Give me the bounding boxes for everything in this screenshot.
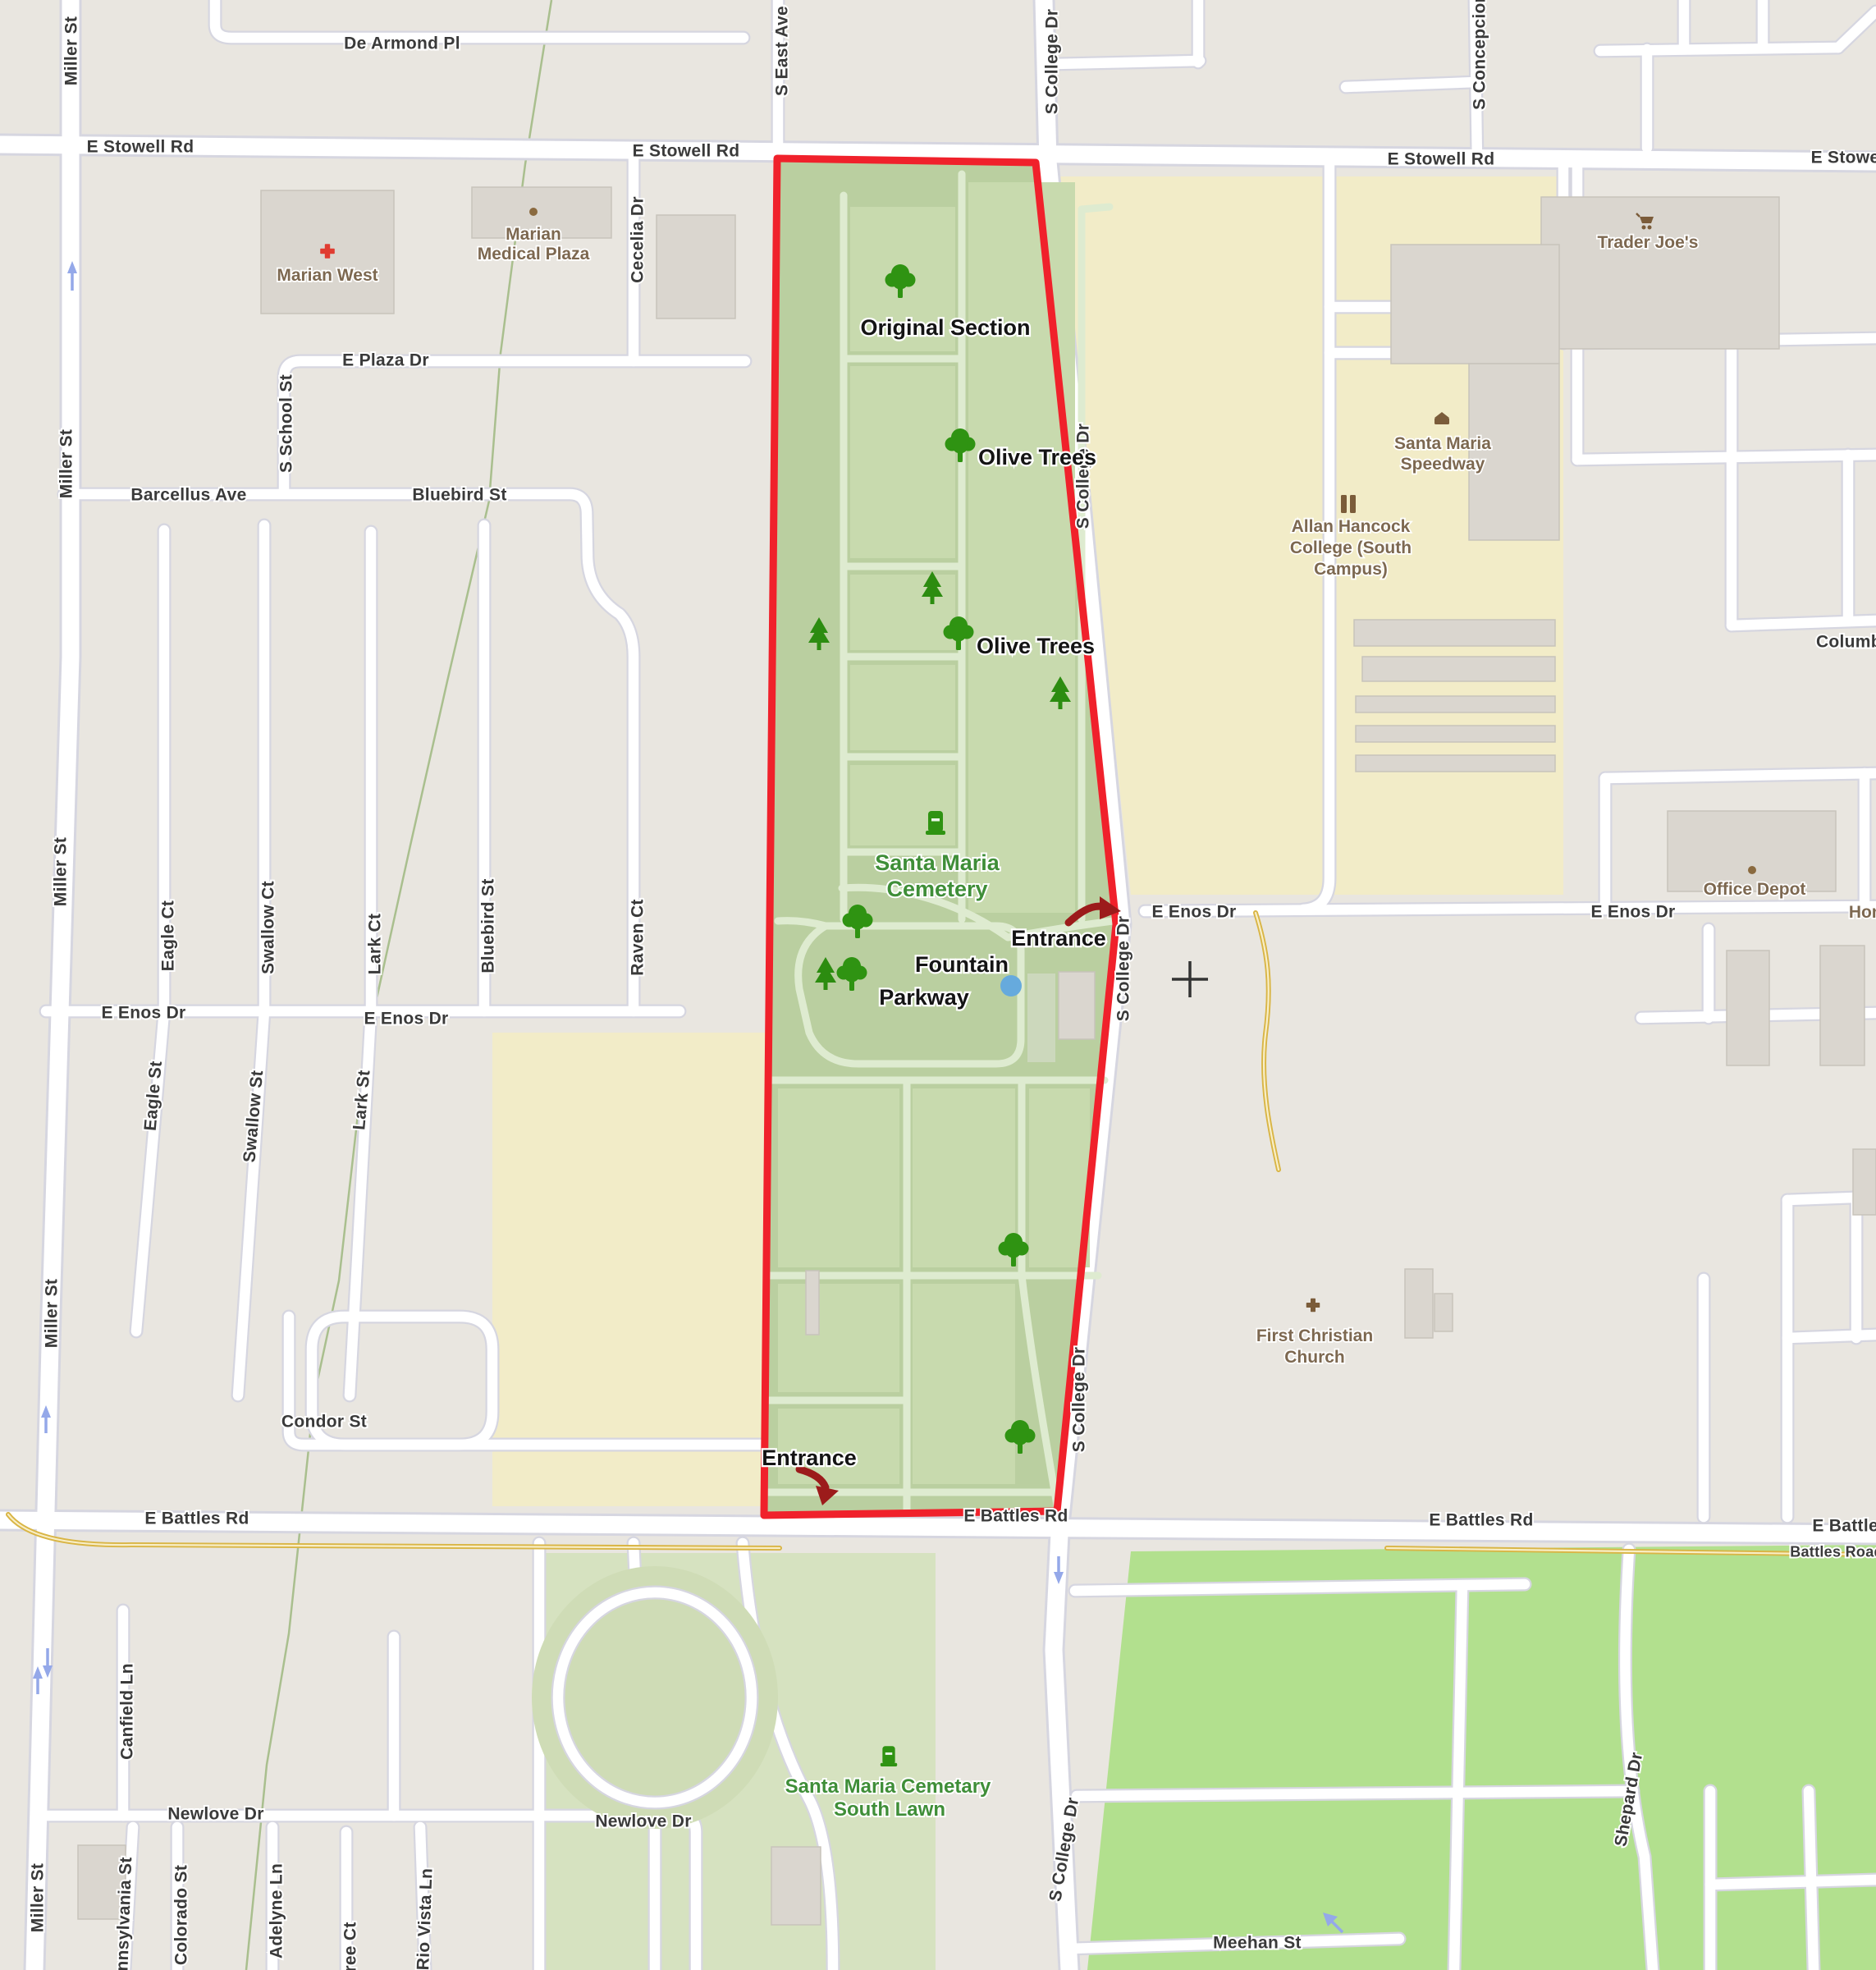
poi-label-hancock-3: Campus) <box>1314 560 1388 579</box>
cemetery-area <box>764 158 1116 1515</box>
cemetery-monument-icon <box>926 811 945 835</box>
street-label: S College Dr <box>1042 9 1061 114</box>
annotation-fountain: Fountain <box>915 952 1009 977</box>
annotation-entrance-north: Entrance <box>1011 926 1106 951</box>
street-label: S East Ave <box>772 6 791 96</box>
street-label: Miller St <box>28 1863 47 1932</box>
map-canvas[interactable]: Miller St Miller St Miller St Miller St … <box>0 0 1876 1970</box>
street-label: Cecelia Dr <box>628 196 647 283</box>
annotation-olive-trees-2: Olive Trees <box>977 634 1095 658</box>
street-label: E Stowell Rd <box>633 141 740 160</box>
cemetery-name-line1: Santa Maria <box>875 850 1000 875</box>
south-lawn-circle-area <box>532 1566 778 1829</box>
poi-label-speedway-1: Santa Maria <box>1394 434 1491 453</box>
street-label: Condor St <box>281 1412 367 1431</box>
street-label: E Battles Rd <box>963 1506 1068 1525</box>
street-label: Newlove Dr <box>167 1804 263 1823</box>
cemetery-name-line2: Cemetery <box>886 877 987 901</box>
street-label: Newlove Dr <box>595 1812 691 1830</box>
street-label: Raven Ct <box>628 899 647 975</box>
street-label: E Stowell Rd <box>87 137 194 156</box>
street-label: ree Ct <box>341 1922 359 1970</box>
annotation-parkway: Parkway <box>879 985 969 1010</box>
map-svg: Miller St Miller St Miller St Miller St … <box>0 0 1876 1970</box>
street-label: Colorado St <box>172 1865 190 1965</box>
south-lawn-name-line2: South Lawn <box>834 1798 945 1821</box>
street-label: E Enos Dr <box>1151 902 1236 921</box>
street-label: Meehan St <box>1213 1933 1302 1952</box>
street-label: E Enos Dr <box>101 1003 185 1022</box>
street-label: S College Dr <box>1069 1347 1088 1452</box>
street-label: Miller St <box>62 16 80 85</box>
south-lawn-name-line1: Santa Maria Cemetary <box>785 1775 991 1798</box>
street-label: Miller St <box>42 1279 61 1348</box>
poi-label-hancock-1: Allan Hancock <box>1292 517 1411 536</box>
poi-label-speedway-2: Speedway <box>1401 455 1485 474</box>
poi-label-church-1: First Christian <box>1256 1326 1373 1345</box>
poi-label-home-clipped: Home <box>1849 903 1876 922</box>
street-label: De Armond Pl <box>344 34 460 53</box>
street-label: Swallow Ct <box>259 881 277 974</box>
annotation-original-section: Original Section <box>860 315 1030 340</box>
street-label: Bluebird St <box>412 485 506 504</box>
street-label: Lark Ct <box>365 914 384 974</box>
park-area-east <box>1087 1545 1876 1970</box>
cemetery-parking <box>1027 974 1055 1062</box>
street-label: Pennsylvania St <box>112 1857 135 1970</box>
street-label: E Enos Dr <box>364 1009 448 1028</box>
poi-label-office-depot: Office Depot <box>1704 880 1806 899</box>
poi-label-marian-west: Marian West <box>277 266 377 285</box>
street-label: Eagle Ct <box>158 900 177 971</box>
south-lawn-monument-icon <box>881 1746 897 1766</box>
poi-dot-icon <box>529 208 538 216</box>
cemetery-small-building <box>806 1271 819 1335</box>
street-label: Bluebird St <box>478 878 497 973</box>
street-label: Barcellus Ave <box>130 485 246 504</box>
street-label: S College Dr <box>1114 916 1132 1021</box>
street-label: Battles Road <box>1790 1543 1876 1560</box>
street-label: E Battles Rd <box>1429 1510 1533 1529</box>
annotation-entrance-south: Entrance <box>762 1445 857 1470</box>
cemetery-office-building <box>1059 972 1095 1039</box>
poi-label-hancock-2: College (South <box>1290 538 1412 557</box>
annotation-olive-trees-1: Olive Trees <box>978 445 1096 470</box>
street-label: E Enos Dr <box>1590 902 1675 921</box>
street-label: Columbia <box>1816 632 1876 651</box>
poi-label-marian-medical-1: Marian <box>506 225 561 244</box>
street-label: E Plaza Dr <box>342 350 429 369</box>
fountain-icon <box>1000 975 1022 996</box>
poi-label-marian-medical-2: Medical Plaza <box>478 245 590 263</box>
school-grounds-area <box>492 1033 771 1506</box>
street-label: S College Dr <box>1073 424 1092 529</box>
poi-dot-icon <box>1748 866 1756 874</box>
poi-label-trader-joes: Trader Joe's <box>1598 233 1699 252</box>
street-label: E Stowell Rd <box>1811 148 1876 167</box>
street-label: Miller St <box>57 429 75 498</box>
street-label: E Stowell Rd <box>1388 149 1495 168</box>
street-label: E Battles Rd <box>144 1509 249 1528</box>
street-label: S Concepcion <box>1470 0 1489 110</box>
street-label: Rio Vista Ln <box>414 1867 436 1970</box>
street-label: Canfield Ln <box>117 1663 136 1760</box>
street-label: Miller St <box>51 837 70 906</box>
poi-label-church-2: Church <box>1284 1348 1345 1367</box>
street-label: Adelyne Ln <box>267 1863 286 1959</box>
street-label: S School St <box>277 374 295 473</box>
street-label: E Battles Rd <box>1812 1516 1876 1535</box>
